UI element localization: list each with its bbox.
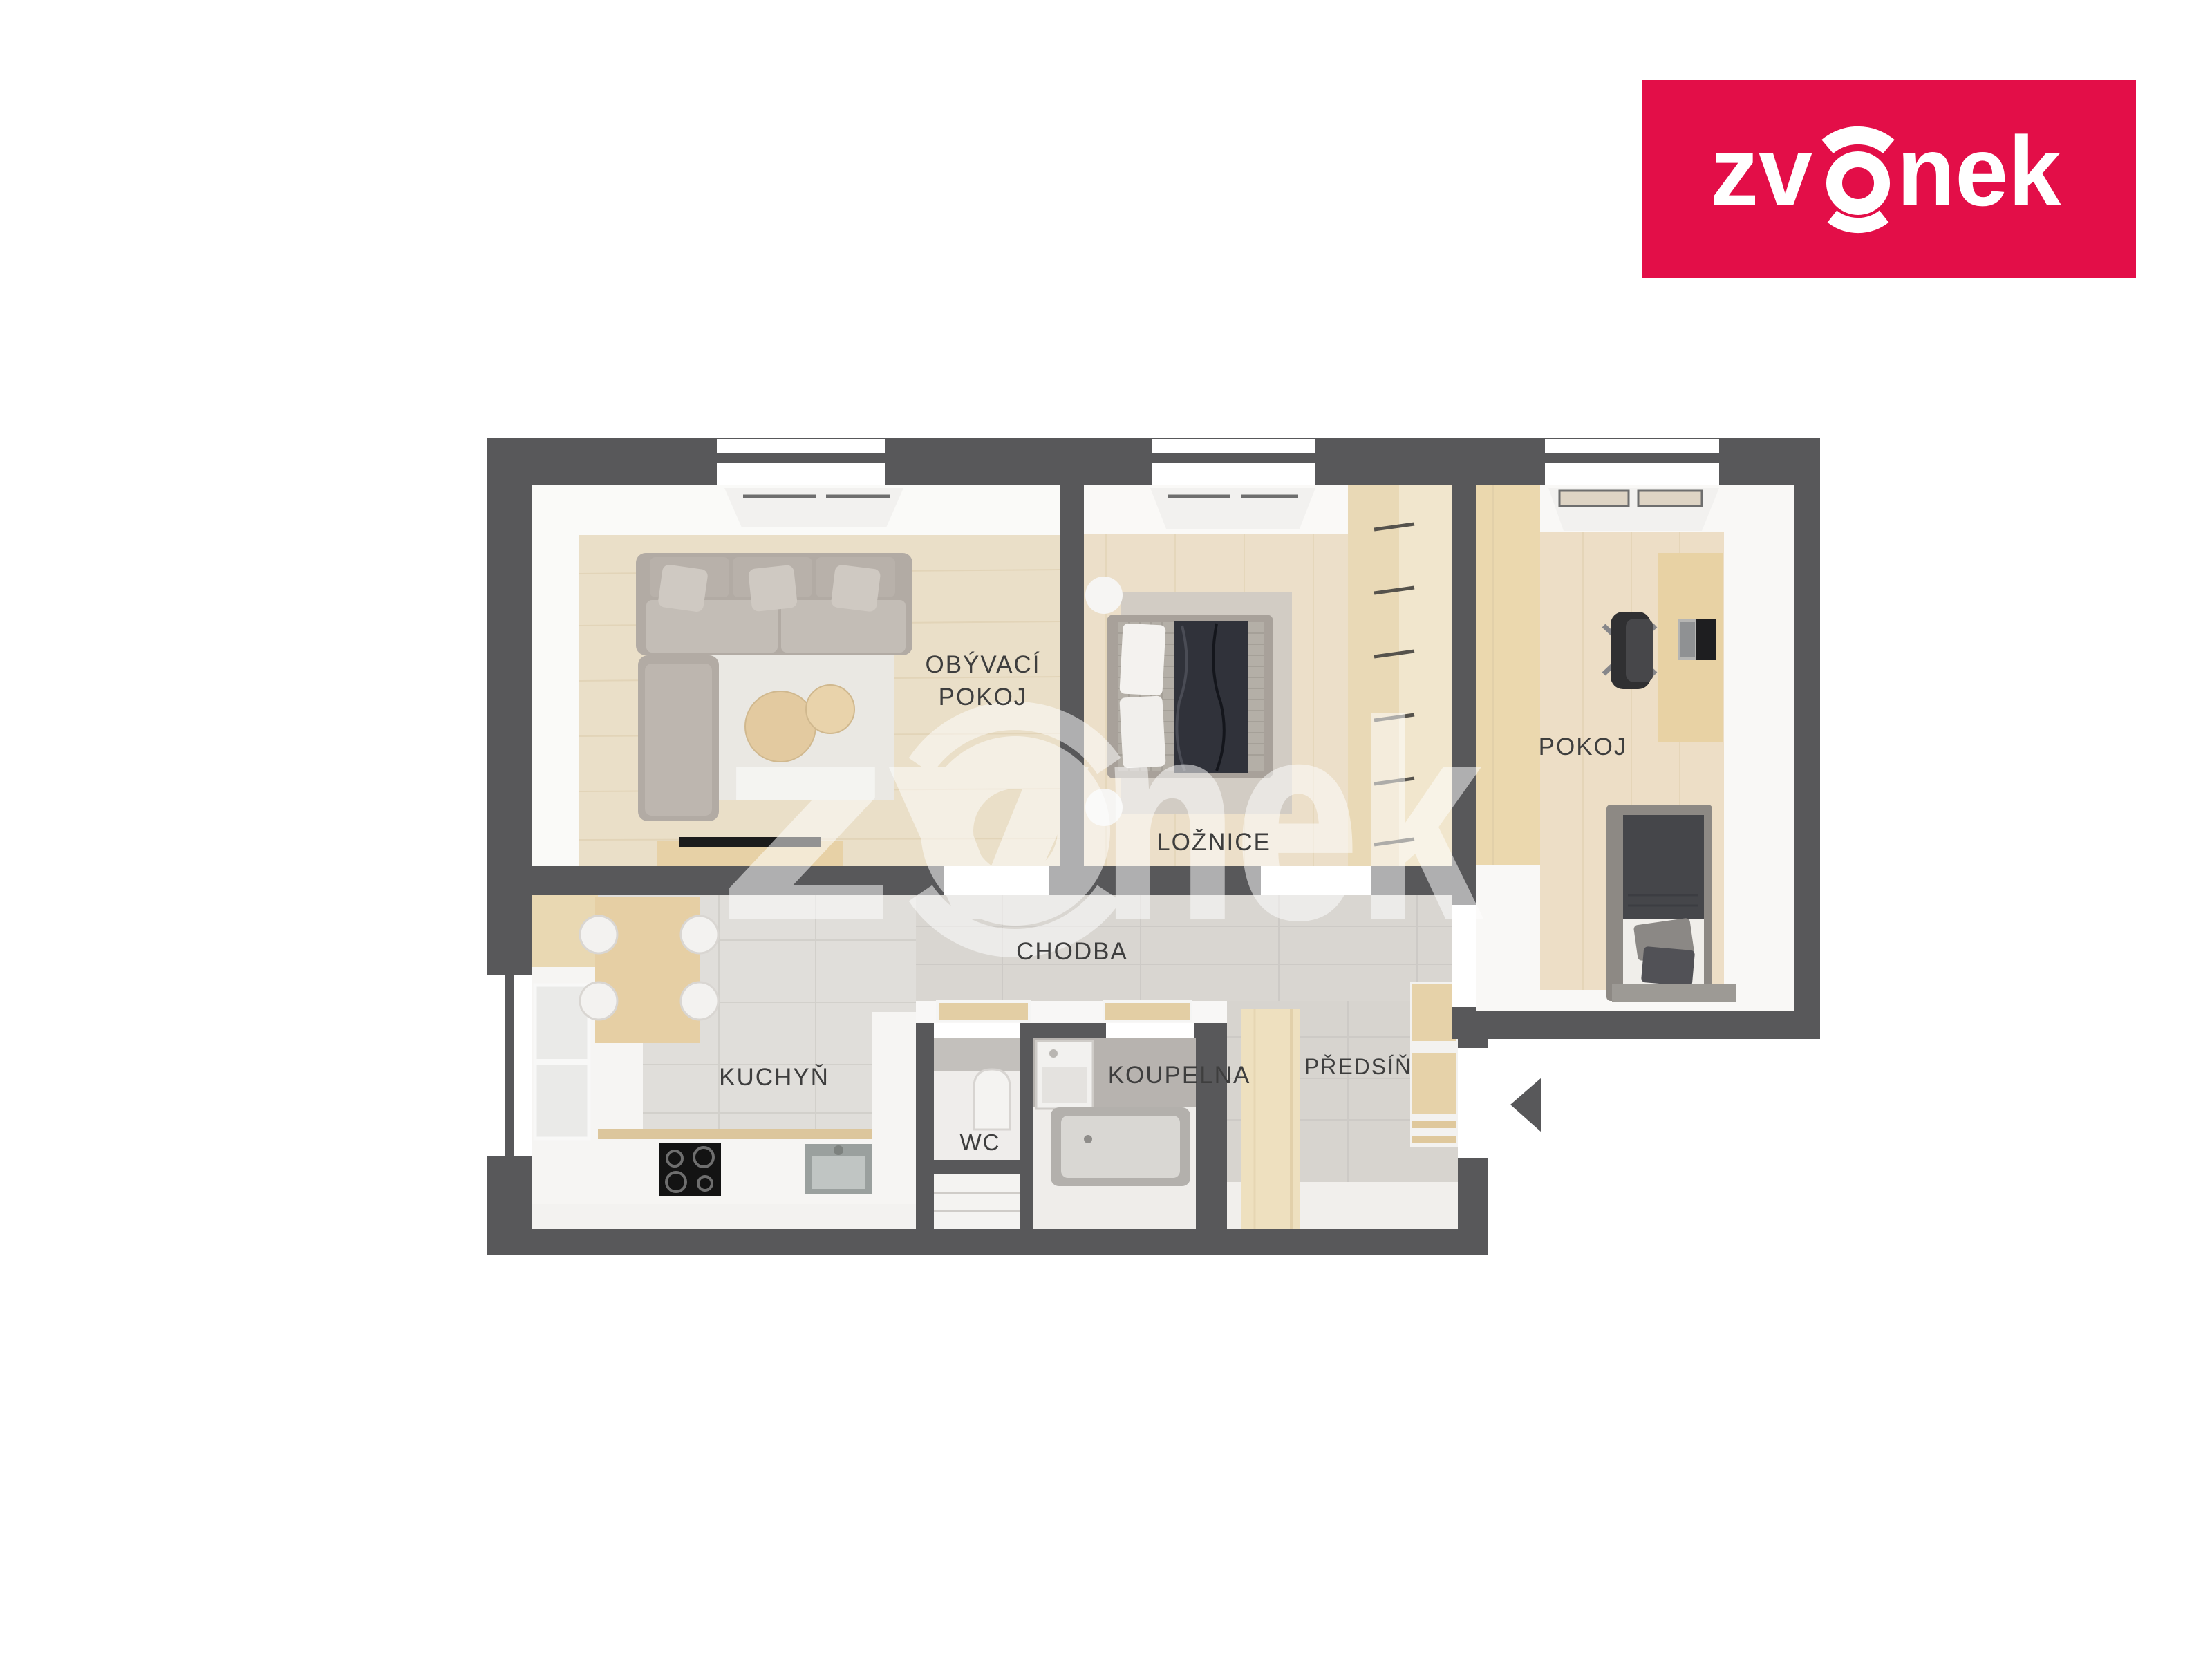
svg-text:POKOJ: POKOJ <box>939 684 1028 711</box>
svg-text:nek: nek <box>1897 117 2061 227</box>
svg-text:OBÝVACÍ: OBÝVACÍ <box>925 651 1040 678</box>
svg-text:KOUPELNA: KOUPELNA <box>1108 1062 1251 1089</box>
svg-text:CHODBA: CHODBA <box>1016 938 1128 965</box>
svg-text:WC: WC <box>960 1130 1001 1155</box>
svg-text:LOŽNICE: LOŽNICE <box>1156 829 1271 856</box>
svg-text:POKOJ: POKOJ <box>1539 733 1628 760</box>
svg-text:KUCHYŇ: KUCHYŇ <box>719 1064 829 1091</box>
svg-text:zv: zv <box>1710 117 1812 227</box>
svg-text:nek: nek <box>1103 666 1481 975</box>
svg-text:PŘEDSÍŇ: PŘEDSÍŇ <box>1304 1054 1412 1079</box>
